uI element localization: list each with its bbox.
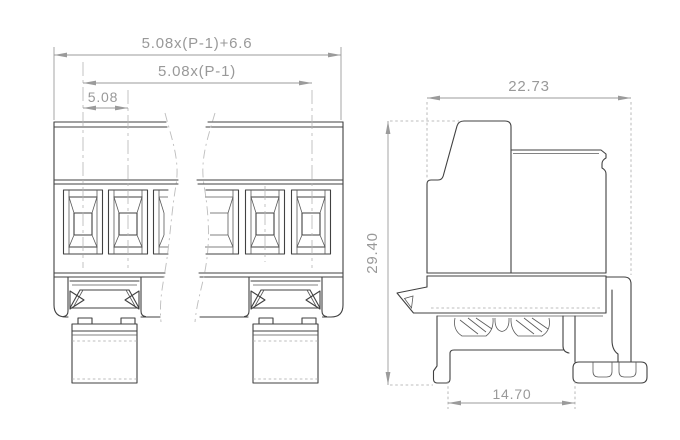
front-body-right-segment: [197, 122, 343, 317]
dimension-pitch: 5.08: [83, 89, 128, 110]
clamp-and-foot-left: [64, 277, 146, 383]
side-view: 22.73 29.40 14.70: [364, 78, 647, 409]
drawing-sheet: 5.08x(P-1)+6.6 5.08x(P-1) 5.08: [0, 0, 680, 440]
side-housing-outline: [427, 121, 606, 276]
front-view: 5.08x(P-1)+6.6 5.08x(P-1) 5.08: [54, 35, 343, 383]
break-lines: [160, 113, 215, 322]
screw-cavity-partial-right: [205, 190, 239, 254]
dim-height-label: 29.40: [364, 232, 381, 274]
din-rail-clamp: [434, 277, 648, 383]
dim-pole-span-label: 5.08x(P-1): [158, 63, 236, 80]
dim-pitch-label: 5.08: [88, 89, 118, 105]
din-rail-band: [397, 276, 606, 316]
dim-overall-length-label: 5.08x(P-1)+6.6: [142, 35, 253, 52]
technical-drawing: 5.08x(P-1)+6.6 5.08x(P-1) 5.08: [0, 0, 680, 440]
dimension-depth: 22.73: [427, 78, 631, 275]
screw-cavity-partial-left: [154, 190, 169, 254]
dimension-height: 29.40: [364, 121, 459, 385]
dim-rail-slot-label: 14.70: [492, 386, 531, 402]
dimension-pole-span: 5.08x(P-1): [83, 63, 312, 85]
screw-cavity: [292, 190, 331, 254]
dim-depth-label: 22.73: [508, 78, 550, 95]
screw-cavity-row: [64, 190, 331, 254]
dimension-rail-slot: 14.70: [448, 381, 575, 409]
clamp-and-foot-right: [245, 277, 327, 383]
